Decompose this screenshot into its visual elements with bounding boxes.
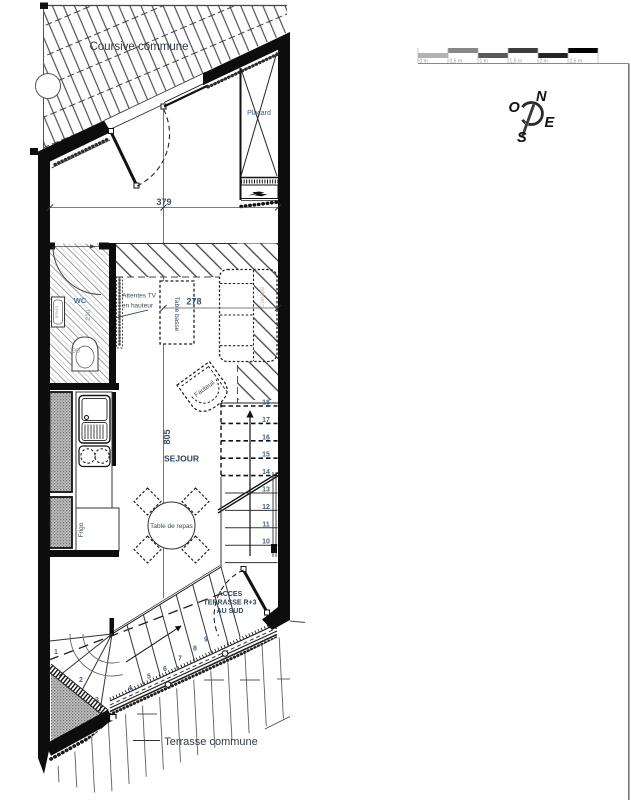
svg-text:en hauteur: en hauteur bbox=[122, 303, 154, 310]
svg-text:15: 15 bbox=[262, 452, 270, 459]
svg-text:Attentes TV: Attentes TV bbox=[122, 293, 157, 300]
svg-text:N: N bbox=[536, 89, 547, 105]
svg-text:7: 7 bbox=[178, 656, 182, 663]
svg-text:SEJOUR: SEJOUR bbox=[164, 454, 199, 464]
svg-text:ACCES: ACCES bbox=[218, 591, 243, 598]
svg-text:379: 379 bbox=[156, 197, 171, 207]
svg-text:13: 13 bbox=[262, 487, 270, 494]
svg-text:12: 12 bbox=[262, 504, 270, 511]
svg-text:2: 2 bbox=[79, 677, 83, 684]
svg-text:10: 10 bbox=[262, 539, 270, 546]
svg-text:210: 210 bbox=[85, 309, 92, 320]
svg-text:60x45: 60x45 bbox=[54, 305, 59, 318]
svg-text:90: 90 bbox=[72, 348, 80, 355]
svg-text:16: 16 bbox=[262, 434, 270, 441]
svg-text:Table basse: Table basse bbox=[173, 297, 180, 332]
svg-text:WC: WC bbox=[74, 296, 87, 305]
svg-text:Terrasse commune: Terrasse commune bbox=[164, 736, 258, 748]
svg-text:11: 11 bbox=[262, 521, 270, 528]
svg-text:8: 8 bbox=[193, 646, 197, 653]
svg-text:278: 278 bbox=[186, 297, 201, 307]
svg-text:Canapé: Canapé bbox=[260, 286, 266, 308]
svg-text:O: O bbox=[509, 100, 521, 116]
svg-text:AU SUD: AU SUD bbox=[217, 608, 244, 615]
svg-text:1: 1 bbox=[54, 649, 58, 656]
svg-text:805: 805 bbox=[162, 429, 172, 444]
svg-text:9: 9 bbox=[204, 637, 208, 644]
svg-text:17: 17 bbox=[262, 417, 270, 424]
svg-text:14: 14 bbox=[262, 469, 270, 476]
svg-text:TERRASSE R+3: TERRASSE R+3 bbox=[203, 600, 256, 607]
svg-text:Frigo: Frigo bbox=[78, 522, 85, 537]
svg-text:S: S bbox=[517, 130, 527, 146]
svg-text:6: 6 bbox=[163, 666, 167, 673]
svg-text:Table de repas: Table de repas bbox=[150, 523, 193, 530]
svg-text:Placard: Placard bbox=[247, 110, 271, 117]
svg-text:18: 18 bbox=[262, 400, 270, 407]
svg-text:E: E bbox=[545, 115, 556, 131]
svg-text:Coursive commune: Coursive commune bbox=[89, 41, 188, 53]
